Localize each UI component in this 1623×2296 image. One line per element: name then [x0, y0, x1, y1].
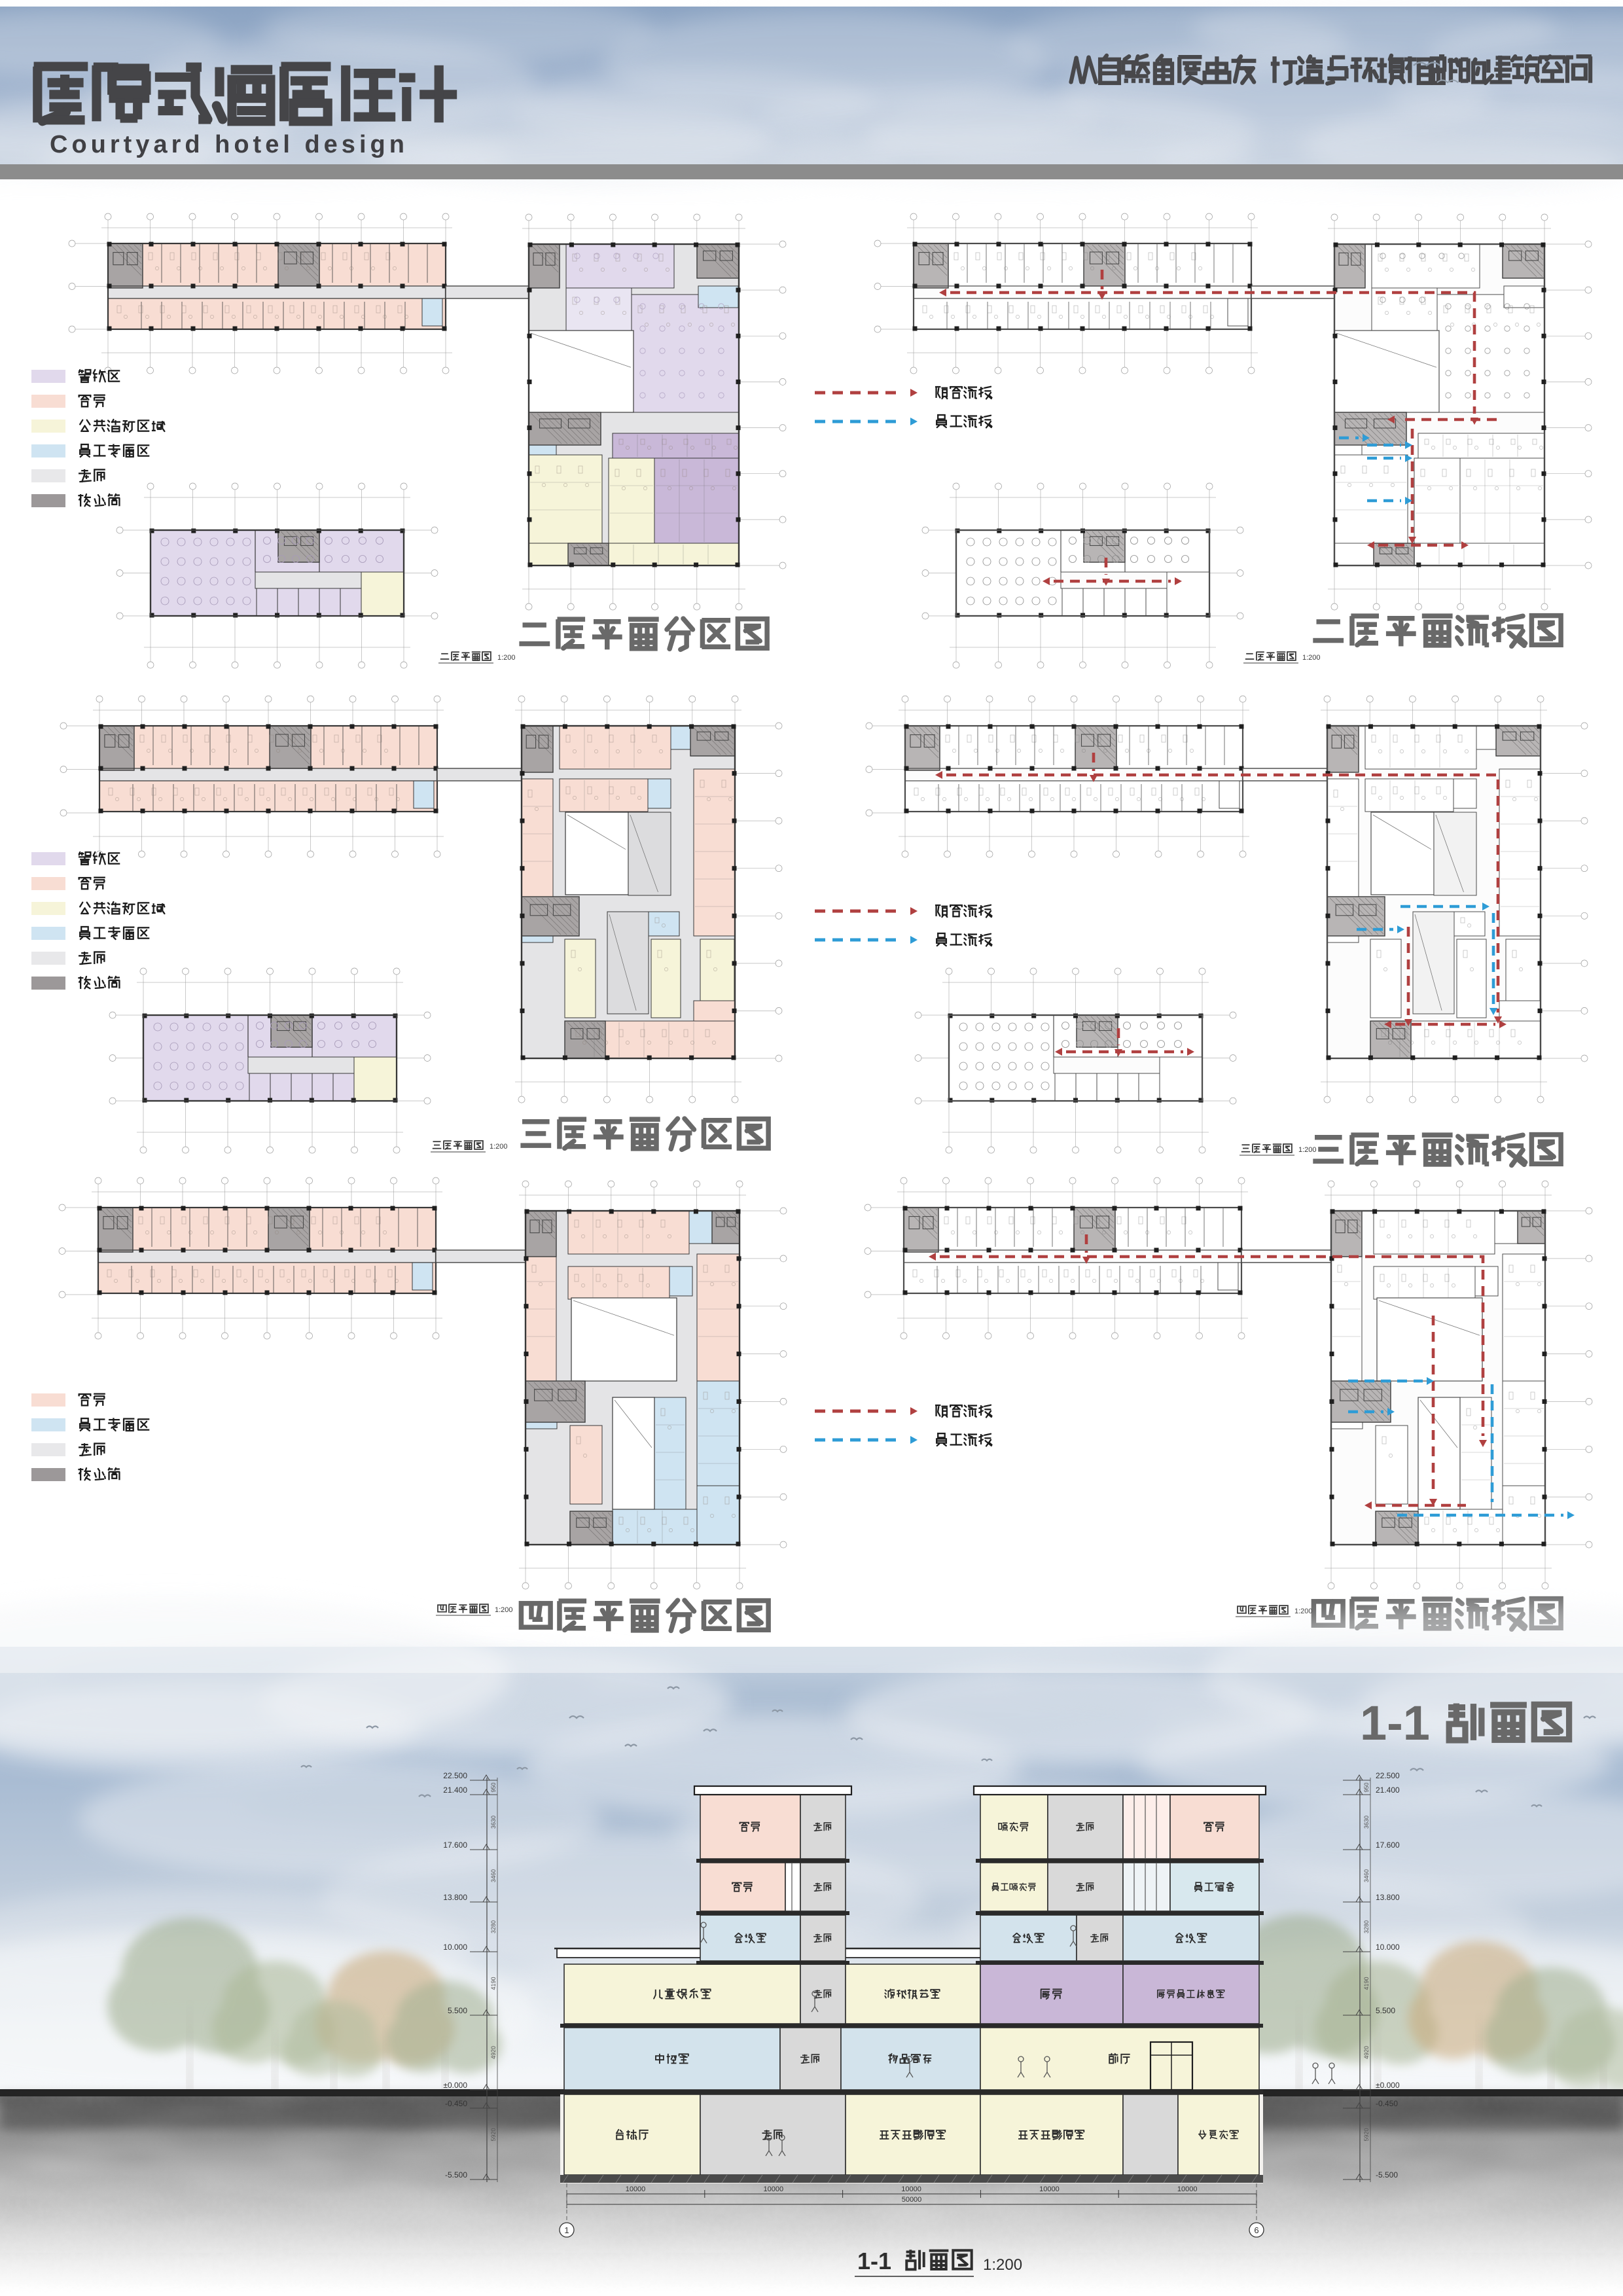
- svg-text:1:200: 1:200: [497, 654, 516, 662]
- svg-text:10.000: 10.000: [1376, 1943, 1400, 1952]
- svg-text:1:200: 1:200: [1302, 654, 1321, 662]
- svg-text:5.500: 5.500: [1376, 2006, 1395, 2015]
- svg-text:±0.000: ±0.000: [1376, 2081, 1400, 2090]
- svg-text:3630: 3630: [1363, 1816, 1370, 1829]
- svg-text:5920: 5920: [490, 2128, 497, 2141]
- svg-text:3280: 3280: [1363, 1920, 1370, 1933]
- svg-text:950: 950: [1363, 1782, 1370, 1792]
- svg-text:10000: 10000: [764, 2185, 784, 2193]
- svg-text:3280: 3280: [490, 1920, 497, 1933]
- svg-text:1:200: 1:200: [495, 1606, 513, 1614]
- svg-text:17.600: 17.600: [1376, 1840, 1400, 1850]
- svg-text:1:200: 1:200: [1298, 1146, 1317, 1154]
- svg-text:1-1: 1-1: [857, 2248, 891, 2274]
- svg-text:13.800: 13.800: [443, 1893, 467, 1902]
- svg-text:-0.450: -0.450: [1376, 2099, 1398, 2108]
- svg-text:10000: 10000: [626, 2185, 646, 2193]
- svg-text:4920: 4920: [490, 2046, 497, 2059]
- svg-text:-0.450: -0.450: [445, 2099, 467, 2108]
- svg-text:1:200: 1:200: [490, 1143, 508, 1151]
- svg-text:17.600: 17.600: [443, 1840, 467, 1850]
- svg-text:950: 950: [490, 1782, 497, 1792]
- svg-text:50000: 50000: [902, 2196, 922, 2204]
- svg-text:1: 1: [564, 2225, 569, 2235]
- svg-text:10000: 10000: [901, 2185, 921, 2193]
- svg-text:4920: 4920: [1363, 2046, 1370, 2059]
- svg-text:4190: 4190: [1363, 1977, 1370, 1990]
- svg-text:5.500: 5.500: [448, 2006, 467, 2015]
- svg-text:3460: 3460: [490, 1869, 497, 1882]
- svg-text:1:200: 1:200: [1294, 1607, 1313, 1615]
- svg-text:-5.500: -5.500: [1376, 2170, 1398, 2179]
- svg-text:21.400: 21.400: [443, 1785, 467, 1795]
- svg-text:-5.500: -5.500: [445, 2170, 467, 2179]
- svg-text:10000: 10000: [1039, 2185, 1060, 2193]
- svg-text:1:200: 1:200: [983, 2256, 1022, 2274]
- svg-text:22.500: 22.500: [443, 1771, 467, 1780]
- svg-text:5920: 5920: [1363, 2128, 1370, 2141]
- svg-text:Courtyard hotel design: Courtyard hotel design: [50, 131, 408, 158]
- svg-text:4190: 4190: [490, 1977, 497, 1990]
- svg-text:6: 6: [1254, 2225, 1258, 2235]
- svg-text:22.500: 22.500: [1376, 1771, 1400, 1780]
- svg-text:10.000: 10.000: [443, 1943, 467, 1952]
- svg-text:1-1: 1-1: [1360, 1696, 1430, 1750]
- svg-text:13.800: 13.800: [1376, 1893, 1400, 1902]
- svg-text:3460: 3460: [1363, 1869, 1370, 1882]
- svg-text:3630: 3630: [490, 1816, 497, 1829]
- svg-text:10000: 10000: [1177, 2185, 1198, 2193]
- svg-text:21.400: 21.400: [1376, 1785, 1400, 1795]
- svg-text:±0.000: ±0.000: [443, 2081, 467, 2090]
